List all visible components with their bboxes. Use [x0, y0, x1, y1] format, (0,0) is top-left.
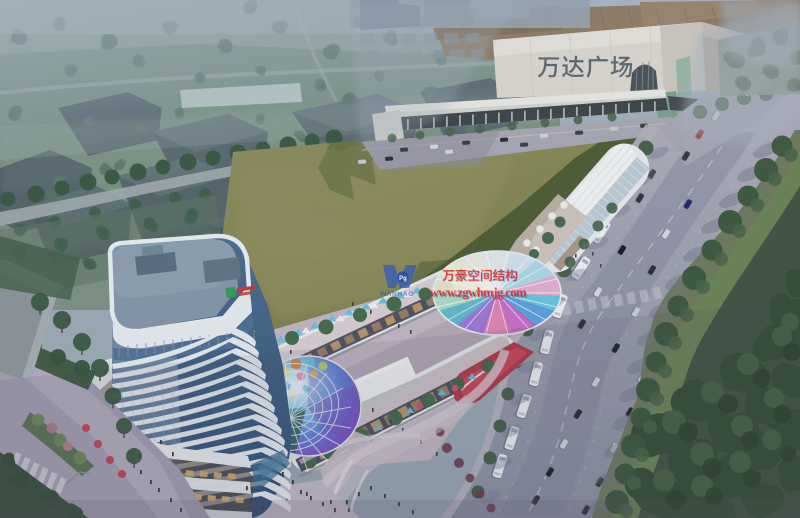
svg-text:www.zgwhmjg.com: www.zgwhmjg.com — [430, 285, 527, 299]
svg-text:WANHAO: WANHAO — [380, 291, 414, 298]
svg-text:Pg: Pg — [399, 276, 407, 282]
